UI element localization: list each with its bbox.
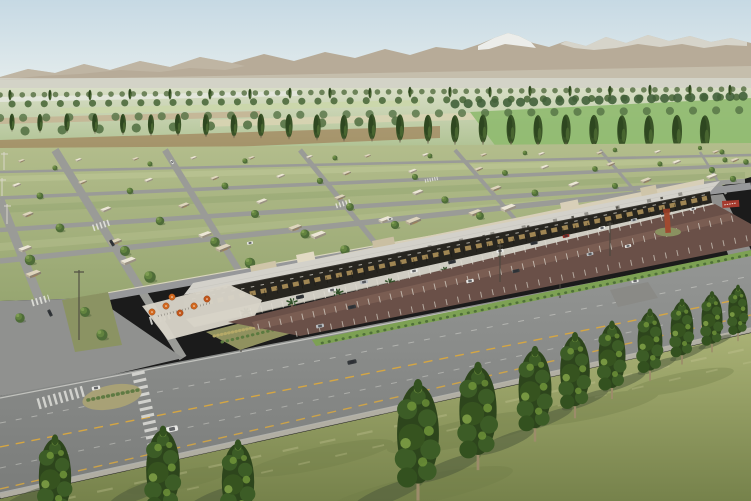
umbrella	[177, 310, 183, 316]
aerial-rendering: Aerial 3D rendering of a master-planned …	[0, 0, 751, 501]
umbrella	[163, 303, 169, 309]
monument-cap	[663, 209, 670, 213]
umbrella	[149, 309, 155, 315]
rendering-viewport: Aerial 3D rendering of a master-planned …	[0, 0, 751, 501]
umbrella	[204, 296, 210, 302]
umbrella	[191, 303, 197, 309]
umbrella	[169, 294, 175, 300]
entry-billboard	[722, 200, 739, 208]
